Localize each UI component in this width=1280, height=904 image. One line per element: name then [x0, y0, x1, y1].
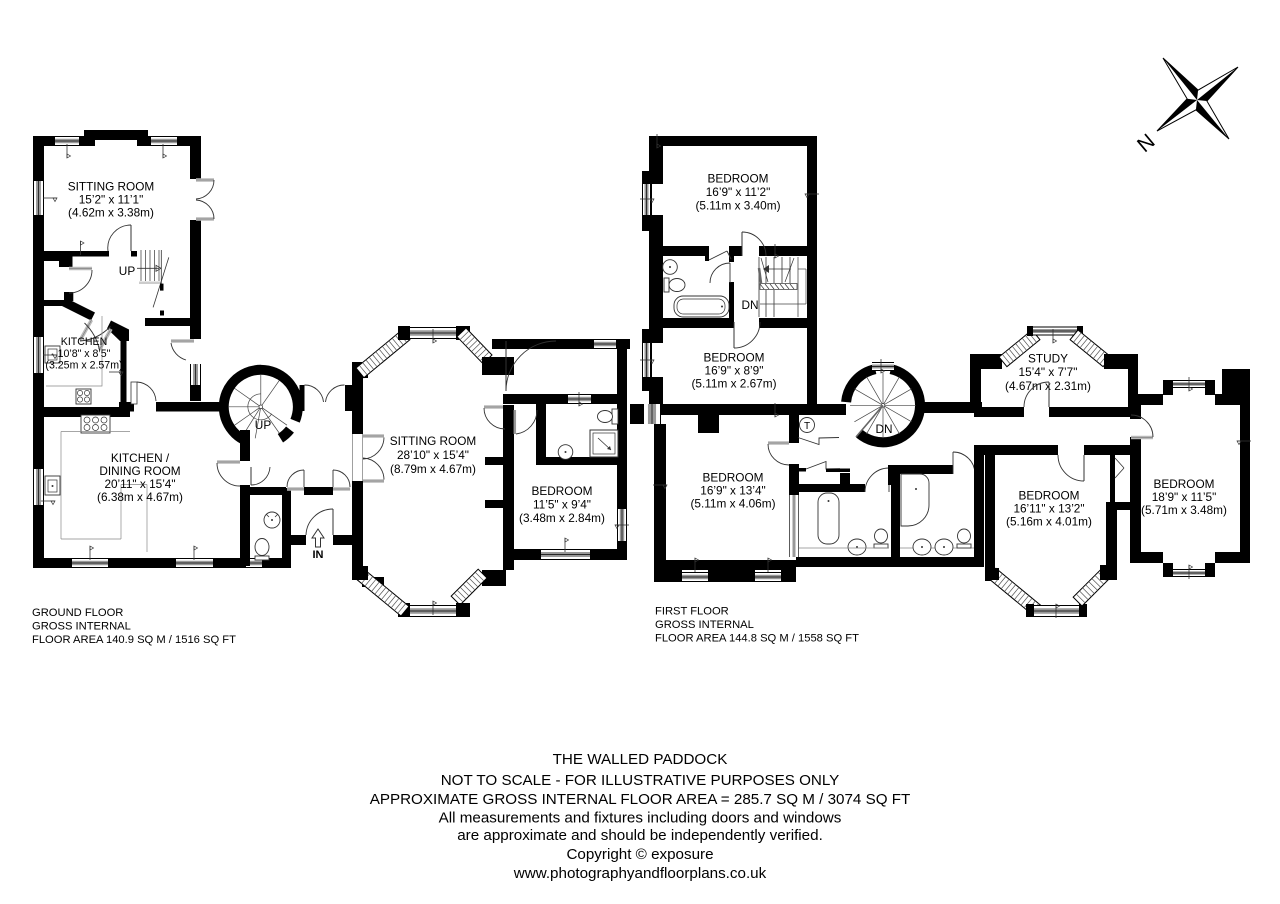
svg-text:18’9" x 11’5": 18’9" x 11’5" [1152, 490, 1217, 504]
svg-text:(6.38m x 4.67m): (6.38m x 4.67m) [97, 490, 183, 504]
svg-text:FLOOR AREA 144.8 SQ M / 1558 S: FLOOR AREA 144.8 SQ M / 1558 SQ FT [655, 633, 859, 645]
svg-text:are approximate and should be: are approximate and should be independen… [457, 827, 823, 844]
svg-text:KITCHEN: KITCHEN [61, 336, 108, 348]
svg-text:28’10" x 15’4": 28’10" x 15’4" [397, 448, 469, 462]
svg-text:BEDROOM: BEDROOM [704, 351, 765, 365]
svg-text:(3.48m x 2.84m): (3.48m x 2.84m) [519, 511, 605, 525]
svg-text:THE WALLED PADDOCK: THE WALLED PADDOCK [553, 751, 728, 768]
svg-text:All measurements and fixtures: All measurements and fixtures including … [439, 810, 842, 827]
svg-text:11’5" x 9’4": 11’5" x 9’4" [533, 498, 591, 512]
svg-text:15’2" x 11’1": 15’2" x 11’1" [79, 193, 144, 207]
svg-text:10’8" x 8’5": 10’8" x 8’5" [58, 348, 111, 360]
svg-text:(5.11m x 3.40m): (5.11m x 3.40m) [695, 199, 780, 213]
svg-text:15’4" x 7’7": 15’4" x 7’7" [1019, 365, 1078, 379]
svg-text:DN: DN [875, 422, 892, 436]
svg-text:FIRST FLOOR: FIRST FLOOR [655, 606, 729, 618]
svg-text:UP: UP [119, 264, 136, 278]
svg-text:GROSS INTERNAL: GROSS INTERNAL [32, 621, 131, 633]
svg-text:BEDROOM: BEDROOM [532, 484, 593, 498]
svg-text:IN: IN [313, 549, 324, 561]
svg-text:APPROXIMATE GROSS INTERNAL FLO: APPROXIMATE GROSS INTERNAL FLOOR AREA = … [370, 791, 911, 808]
svg-text:(3.25m x 2.57m): (3.25m x 2.57m) [45, 360, 122, 372]
svg-text:KITCHEN /: KITCHEN / [111, 451, 170, 465]
svg-text:SITTING ROOM: SITTING ROOM [68, 180, 155, 194]
svg-text:FLOOR AREA 140.9 SQ M / 1516 S: FLOOR AREA 140.9 SQ M / 1516 SQ FT [32, 634, 236, 646]
svg-text:16’9" x 11’2": 16’9" x 11’2" [706, 185, 771, 199]
svg-text:(8.79m x 4.67m): (8.79m x 4.67m) [390, 462, 476, 476]
svg-text:(5.11m x 2.67m): (5.11m x 2.67m) [691, 377, 776, 391]
svg-text:UP: UP [255, 418, 272, 432]
svg-text:Copyright © exposure: Copyright © exposure [566, 846, 713, 863]
svg-text:BEDROOM: BEDROOM [703, 471, 764, 485]
svg-text:T: T [804, 421, 810, 432]
svg-text:16’11" x 13’2": 16’11" x 13’2" [1013, 502, 1084, 516]
svg-text:DN: DN [741, 298, 758, 312]
svg-text:GROSS INTERNAL: GROSS INTERNAL [655, 619, 754, 631]
svg-text:DINING ROOM: DINING ROOM [99, 464, 180, 478]
svg-text:BEDROOM: BEDROOM [1019, 489, 1080, 503]
svg-text:SITTING ROOM: SITTING ROOM [390, 434, 477, 448]
svg-text:(5.11m x 4.06m): (5.11m x 4.06m) [690, 497, 775, 511]
svg-text:BEDROOM: BEDROOM [1154, 477, 1215, 491]
svg-text:NOT TO SCALE - FOR ILLUSTRATIV: NOT TO SCALE - FOR ILLUSTRATIVE PURPOSES… [441, 772, 840, 789]
svg-text:STUDY: STUDY [1028, 352, 1068, 366]
svg-text:GROUND FLOOR: GROUND FLOOR [32, 607, 123, 619]
svg-text:20’11" x 15’4": 20’11" x 15’4" [104, 477, 175, 491]
svg-text:(5.16m x 4.01m): (5.16m x 4.01m) [1006, 515, 1092, 529]
svg-text:(4.62m x 3.38m): (4.62m x 3.38m) [68, 206, 154, 220]
svg-text:16’9" x 8’9": 16’9" x 8’9" [705, 364, 764, 378]
svg-text:(4.67m x 2.31m): (4.67m x 2.31m) [1005, 379, 1091, 393]
svg-text:www.photographyandfloorplans.c: www.photographyandfloorplans.co.uk [513, 865, 767, 882]
svg-text:(5.71m x 3.48m): (5.71m x 3.48m) [1141, 503, 1227, 517]
svg-text:BEDROOM: BEDROOM [708, 172, 769, 186]
svg-text:16’9" x 13’4": 16’9" x 13’4" [700, 484, 765, 498]
